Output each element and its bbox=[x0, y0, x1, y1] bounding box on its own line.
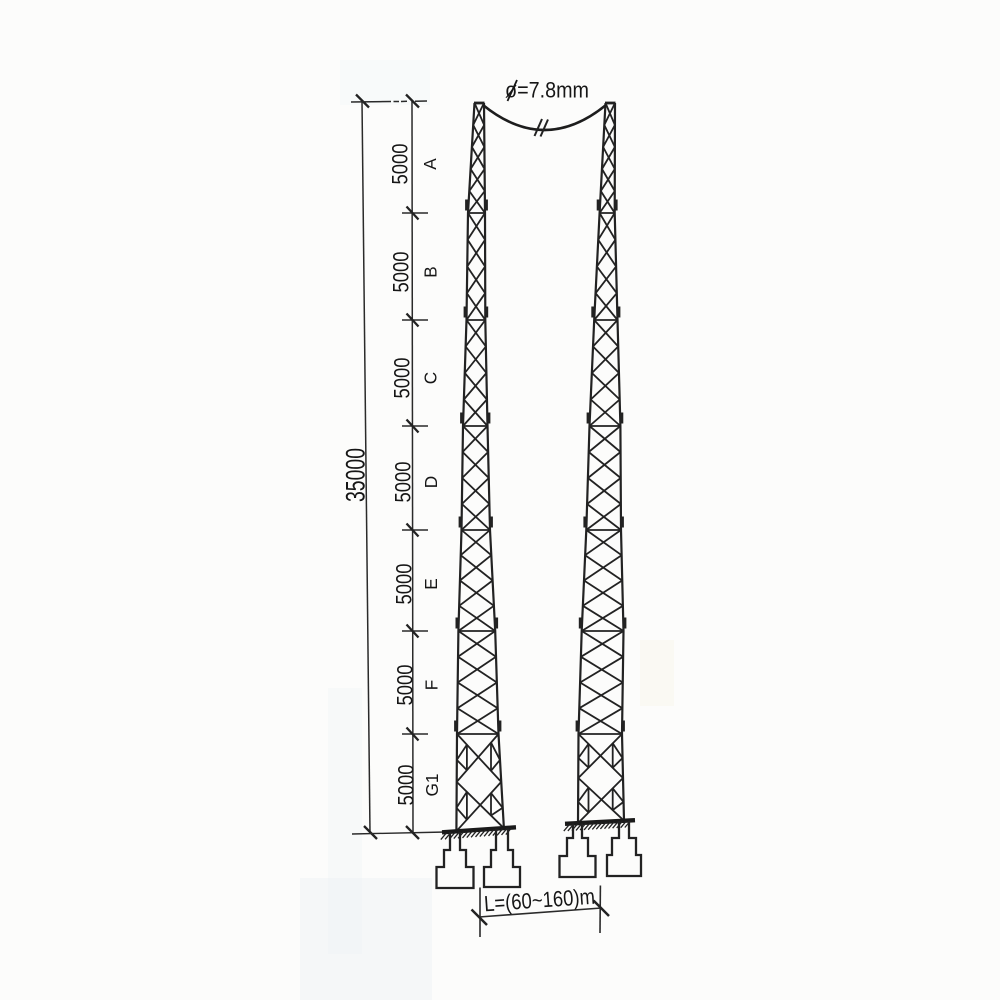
svg-text:5000: 5000 bbox=[389, 252, 414, 293]
svg-text:C: C bbox=[421, 372, 441, 384]
svg-text:5000: 5000 bbox=[390, 358, 415, 399]
svg-text:5000: 5000 bbox=[388, 144, 413, 185]
svg-text:35000: 35000 bbox=[341, 448, 371, 502]
svg-text:A: A bbox=[420, 158, 440, 170]
svg-text:F: F bbox=[422, 680, 442, 691]
svg-text:5000: 5000 bbox=[394, 765, 419, 806]
svg-text:B: B bbox=[420, 266, 440, 277]
svg-text:5000: 5000 bbox=[391, 462, 416, 503]
svg-text:E: E bbox=[421, 578, 441, 589]
svg-text:ø=7.8mm: ø=7.8mm bbox=[505, 78, 589, 103]
svg-text:5000: 5000 bbox=[392, 564, 417, 605]
svg-text:D: D bbox=[421, 476, 441, 488]
svg-text:5000: 5000 bbox=[393, 665, 418, 706]
svg-text:G1: G1 bbox=[422, 774, 442, 797]
